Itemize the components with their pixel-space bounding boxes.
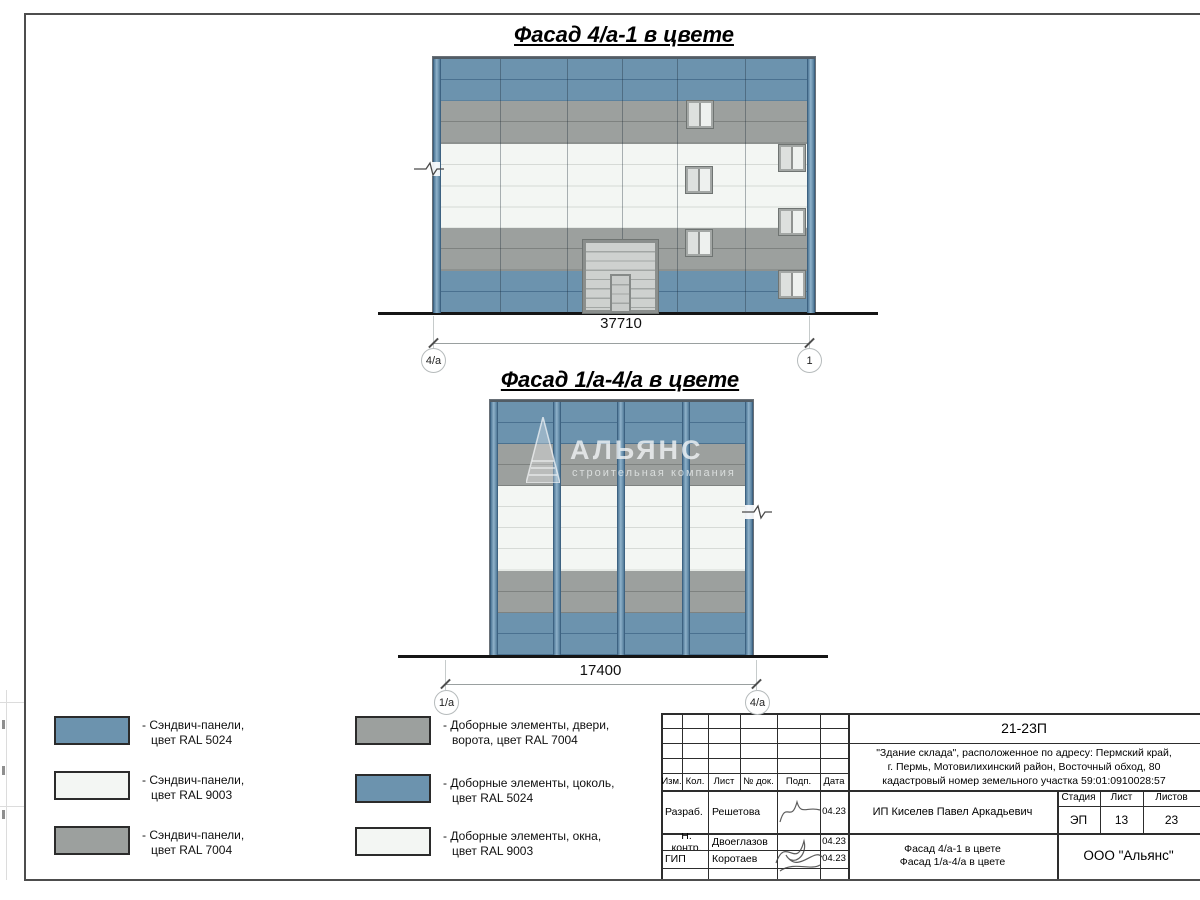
- col-header-izm: Изм.: [661, 773, 682, 790]
- frame-top-line: [24, 13, 1200, 15]
- col-header-ndok: № док.: [740, 773, 777, 790]
- description-line: "Здание склада", расположенное по адресу…: [876, 746, 1172, 760]
- margin-column-line: [6, 690, 7, 880]
- panel-band-gray: [433, 101, 815, 143]
- col-header-podp: Подп.: [777, 773, 820, 790]
- legend-swatch-ral5024: [54, 716, 130, 745]
- axis-bubble: 4/а: [421, 348, 446, 373]
- role-gip: ГИП: [661, 850, 708, 868]
- role-nkontr: Н. контр.: [661, 833, 708, 850]
- list-label: Лист: [1100, 790, 1143, 806]
- frame-left-line: [24, 13, 26, 881]
- legend-label: - Сэндвич-панели,: [142, 828, 244, 843]
- stage-value: ЭП: [1057, 806, 1100, 833]
- role-razrab: Разраб.: [661, 790, 708, 833]
- axis-bubble: 1: [797, 348, 822, 373]
- pilaster: [617, 402, 625, 655]
- panel-joint: [500, 59, 501, 313]
- name-gip: Коротаев: [708, 850, 777, 868]
- legend-swatch-ral7004: [54, 826, 130, 855]
- margin-text-mark: [2, 810, 5, 819]
- dimension-line: [445, 684, 756, 685]
- margin-divider: [0, 806, 24, 807]
- corner-strip: [807, 59, 815, 313]
- window: [779, 145, 805, 171]
- facade1-title: Фасад 4/а-1 в цвете: [433, 22, 815, 48]
- legend-swatch-ral5024: [355, 774, 431, 803]
- wicket-door: [610, 274, 631, 313]
- sheet-title-line: Фасад 1/а-4/а в цвете: [900, 856, 1006, 869]
- legend-item: - Доборные элементы, двери, ворота, цвет…: [443, 718, 609, 748]
- pilaster: [745, 402, 753, 655]
- legend-label: цвет RAL 5024: [142, 733, 244, 748]
- window: [687, 101, 713, 128]
- dimension-line: [433, 343, 809, 344]
- project-description: "Здание склада", расположенное по адресу…: [848, 743, 1200, 790]
- legend-item: - Сэндвич-панели, цвет RAL 5024: [142, 718, 244, 748]
- client-name: ИП Киселев Павел Аркадьевич: [848, 790, 1057, 833]
- axis-bubble: 1/а: [434, 690, 459, 715]
- pilaster: [490, 402, 498, 655]
- facade2-title: Фасад 1/а-4/а в цвете: [450, 367, 790, 393]
- facade1-drawing: [433, 57, 815, 313]
- signature-nkontr-gip: [770, 831, 828, 877]
- extension-line: [809, 316, 810, 350]
- corner-strip: [433, 59, 441, 313]
- ground-line: [398, 655, 828, 658]
- col-header-list: Лист: [708, 773, 740, 790]
- signature-razrab: [776, 794, 826, 832]
- legend-swatch-ral9003: [54, 771, 130, 800]
- sectional-gate: [583, 240, 658, 313]
- frame-bottom-line: [24, 879, 1200, 881]
- panel-joint: [567, 59, 568, 313]
- sheet-title-line: Фасад 4/а-1 в цвете: [904, 843, 1001, 856]
- legend-label: - Доборные элементы, цоколь,: [443, 776, 614, 791]
- legend-label: цвет RAL 9003: [142, 788, 244, 803]
- stage-label: Стадия: [1057, 790, 1100, 806]
- legend-label: цвет RAL 7004: [142, 843, 244, 858]
- legend-label: ворота, цвет RAL 7004: [443, 733, 609, 748]
- name-nkontr: Двоеглазов: [708, 833, 777, 850]
- margin-text-mark: [2, 766, 5, 775]
- legend-label: цвет RAL 5024: [443, 791, 614, 806]
- margin-divider: [0, 702, 24, 703]
- window: [686, 230, 712, 256]
- legend-label: цвет RAL 9003: [443, 844, 601, 859]
- drawing-sheet: Фасад 4/а-1 в цвете 37710 4/а 1: [0, 0, 1200, 900]
- panel-joint: [677, 59, 678, 313]
- col-header-kol: Кол.: [682, 773, 708, 790]
- project-code: 21-23П: [848, 713, 1200, 743]
- break-mark-icon: [742, 503, 772, 521]
- legend-label: - Сэндвич-панели,: [142, 718, 244, 733]
- legend-label: - Доборные элементы, окна,: [443, 829, 601, 844]
- panel-band-white: [433, 144, 815, 229]
- pilaster: [682, 402, 690, 655]
- window: [779, 271, 805, 298]
- sheet-title: Фасад 4/а-1 в цвете Фасад 1/а-4/а в цвет…: [848, 833, 1057, 879]
- break-mark-icon: [414, 160, 444, 178]
- dimension-value: 37710: [433, 315, 809, 332]
- pilaster: [553, 402, 561, 655]
- panel-band-blue: [433, 59, 815, 101]
- listov-label: Листов: [1143, 790, 1200, 806]
- list-value: 13: [1100, 806, 1143, 833]
- legend-item: - Доборные элементы, цоколь, цвет RAL 50…: [443, 776, 614, 806]
- listov-value: 23: [1143, 806, 1200, 833]
- dimension-value: 17400: [445, 662, 756, 679]
- legend-label: - Сэндвич-панели,: [142, 773, 244, 788]
- window: [779, 209, 805, 235]
- axis-bubble: 4/а: [745, 690, 770, 715]
- window: [686, 167, 712, 193]
- panel-joint: [745, 59, 746, 313]
- description-line: кадастровый номер земельного участка 59:…: [882, 774, 1165, 788]
- name-razrab: Решетова: [708, 790, 777, 833]
- titleblock-line: [661, 728, 848, 729]
- margin-text-mark: [2, 720, 5, 729]
- titleblock-line: [661, 758, 848, 759]
- facade2-drawing: АЛЬЯНС строительная компания: [490, 400, 753, 655]
- legend-item: - Доборные элементы, окна, цвет RAL 9003: [443, 829, 601, 859]
- legend-swatch-ral7004: [355, 716, 431, 745]
- legend-swatch-ral9003: [355, 827, 431, 856]
- legend-item: - Сэндвич-панели, цвет RAL 7004: [142, 828, 244, 858]
- col-header-data: Дата: [820, 773, 848, 790]
- description-line: г. Пермь, Мотовилихинский район, Восточн…: [888, 760, 1161, 774]
- company-name: ООО "Альянс": [1057, 833, 1200, 879]
- legend-item: - Сэндвич-панели, цвет RAL 9003: [142, 773, 244, 803]
- legend-label: - Доборные элементы, двери,: [443, 718, 609, 733]
